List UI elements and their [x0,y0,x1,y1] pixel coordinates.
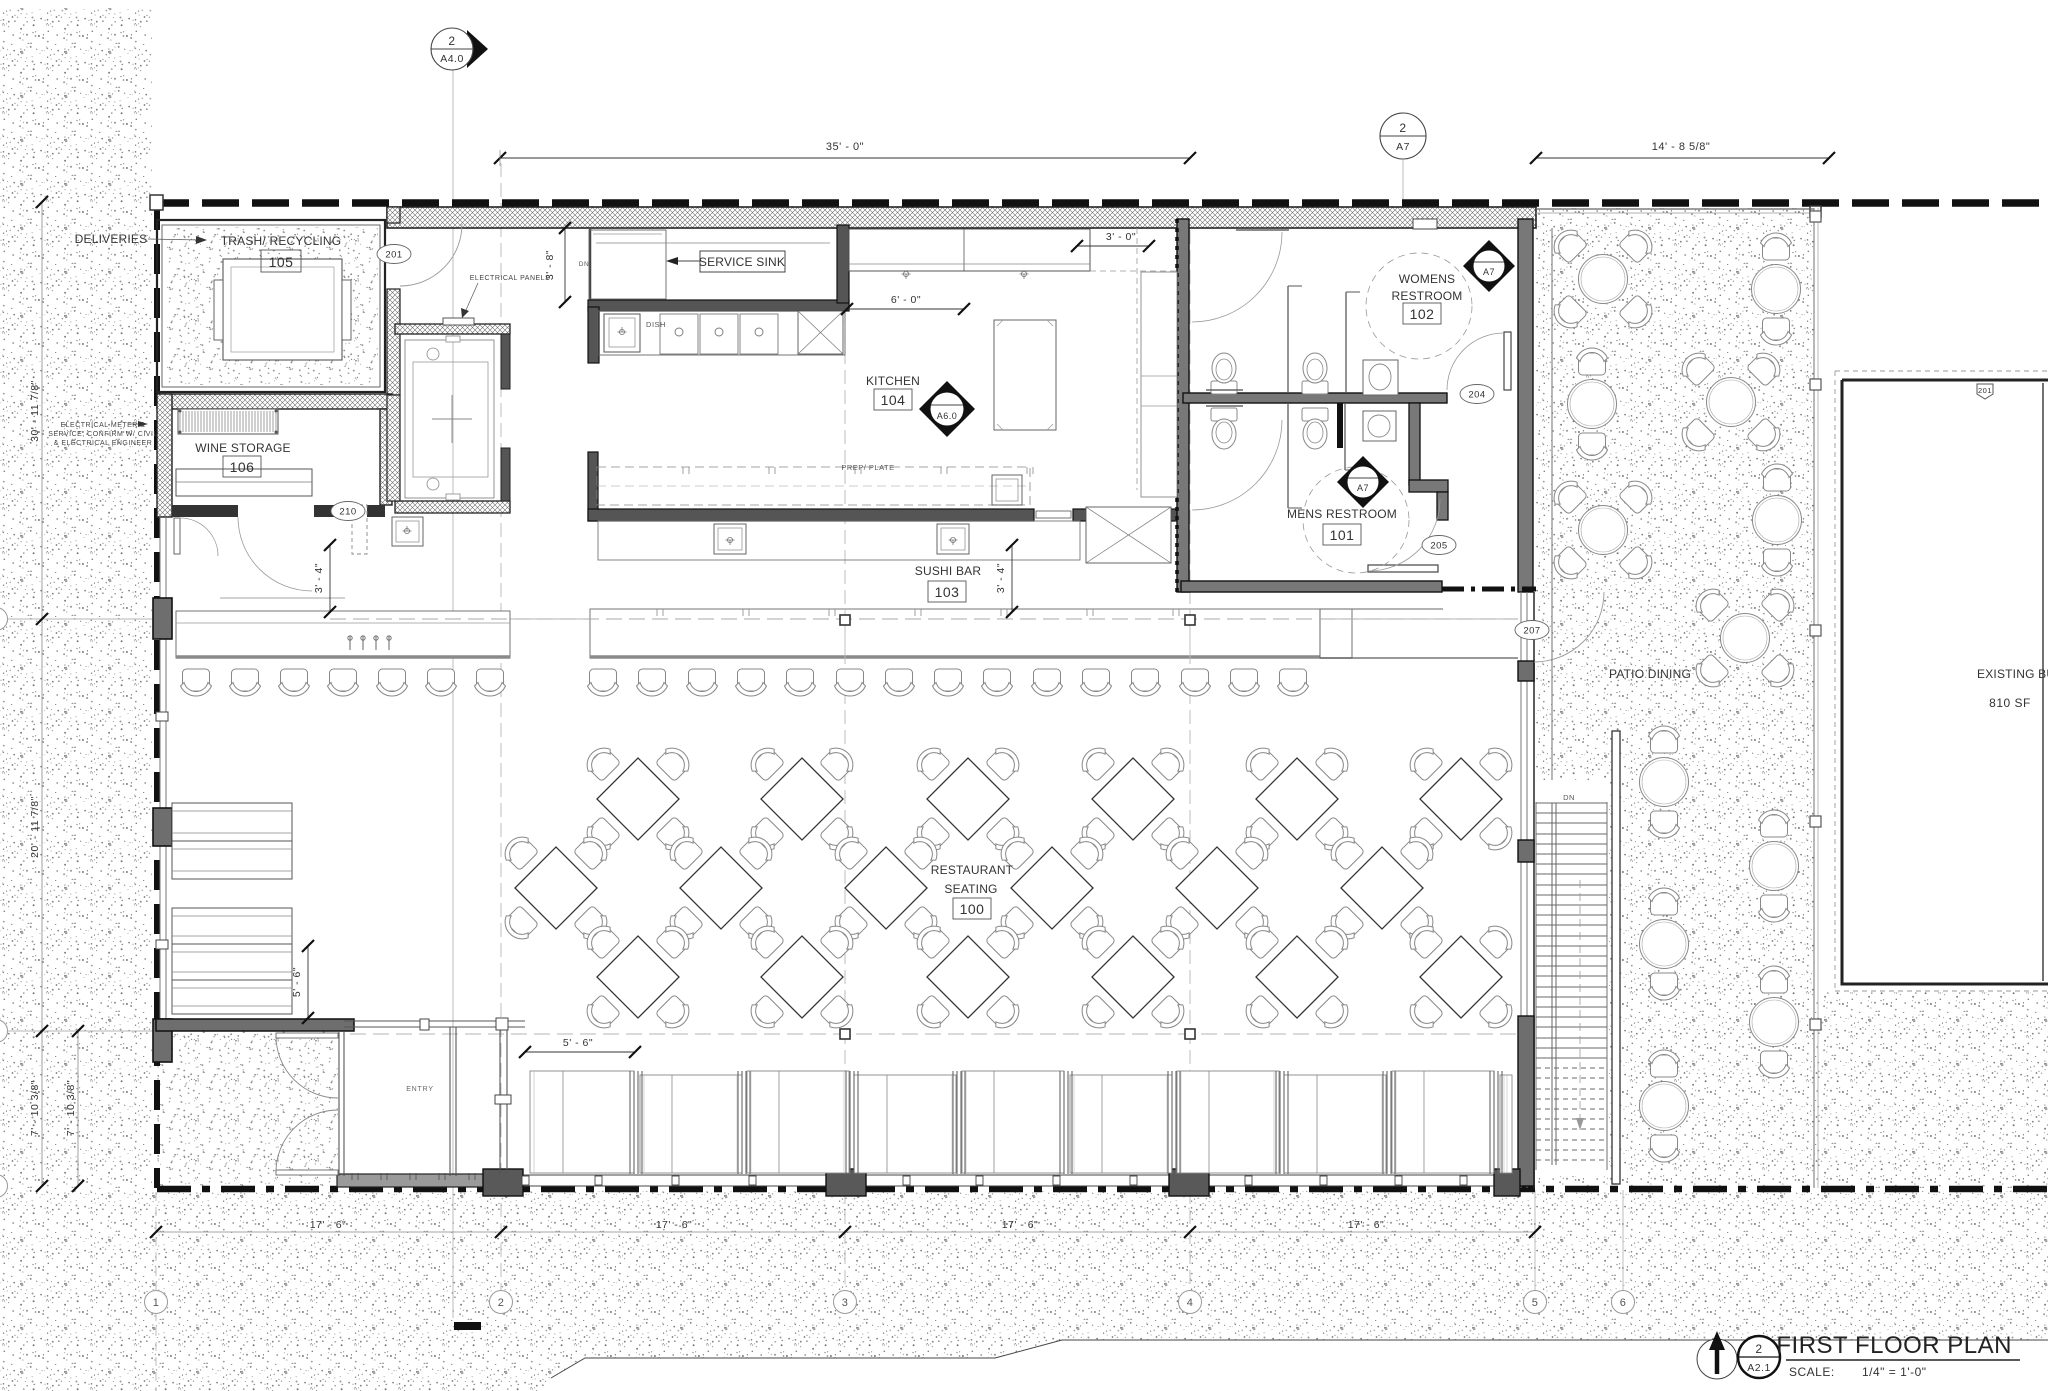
svg-text:101: 101 [1330,527,1355,543]
svg-text:3' - 0": 3' - 0" [1106,231,1136,243]
svg-text:& ELECTRICAL ENGINEER: & ELECTRICAL ENGINEER [54,440,153,447]
svg-text:2: 2 [1399,121,1406,135]
svg-text:ELECTRICAL METER &: ELECTRICAL METER & [61,422,146,429]
svg-text:SEATING: SEATING [944,882,997,896]
svg-text:RESTAURANT: RESTAURANT [931,863,1014,877]
svg-text:1/4" = 1'-0": 1/4" = 1'-0" [1862,1365,1927,1379]
svg-text:102: 102 [1410,306,1435,322]
svg-text:20' - 11 7/8": 20' - 11 7/8" [29,796,41,858]
svg-text:201: 201 [385,250,402,261]
svg-text:17' - 6": 17' - 6" [1348,1219,1385,1231]
svg-text:A7: A7 [1357,483,1369,493]
svg-text:3' - 8": 3' - 8" [544,250,556,280]
svg-text:3: 3 [842,1297,849,1309]
svg-text:17' - 6": 17' - 6" [1002,1219,1039,1231]
svg-text:7' - 10 3/8": 7' - 10 3/8" [65,1080,77,1136]
svg-text:106: 106 [230,459,255,475]
svg-text:TRASH/ RECYCLING: TRASH/ RECYCLING [221,234,342,248]
svg-text:210: 210 [339,507,356,518]
svg-text:3' - 4": 3' - 4" [313,563,325,593]
svg-text:EXISTING BUIL: EXISTING BUIL [1977,667,2048,681]
svg-text:2: 2 [1755,1342,1762,1356]
svg-text:103: 103 [935,584,960,600]
svg-text:30' - 11 7/8": 30' - 11 7/8" [29,380,41,442]
svg-text:RESTROOM: RESTROOM [1392,289,1463,303]
svg-text:A7: A7 [1483,267,1495,277]
svg-text:5' - 6": 5' - 6" [291,967,303,997]
svg-text:6: 6 [1620,1297,1627,1309]
svg-text:A4.0: A4.0 [440,53,464,65]
svg-text:FIRST FLOOR PLAN: FIRST FLOOR PLAN [1776,1332,2012,1359]
svg-text:ELECTRICAL PANELS: ELECTRICAL PANELS [470,275,550,282]
svg-text:MENS RESTROOM: MENS RESTROOM [1287,507,1397,521]
svg-text:PREP/ PLATE: PREP/ PLATE [841,463,894,472]
svg-text:SCALE:: SCALE: [1789,1365,1835,1379]
svg-text:SERVICE SINK: SERVICE SINK [699,255,785,269]
svg-text:SUSHI BAR: SUSHI BAR [915,564,982,578]
svg-text:1: 1 [153,1297,160,1309]
svg-text:5' - 6": 5' - 6" [563,1037,593,1049]
svg-text:17' - 6": 17' - 6" [310,1219,347,1231]
svg-text:5: 5 [1532,1297,1539,1309]
svg-text:DELIVERIES: DELIVERIES [75,232,148,246]
svg-text:205: 205 [1430,541,1447,552]
svg-text:17' - 6": 17' - 6" [656,1219,693,1231]
svg-text:105: 105 [269,254,294,270]
svg-text:2: 2 [498,1297,505,1309]
svg-text:PATIO DINING: PATIO DINING [1609,667,1691,681]
svg-text:WINE STORAGE: WINE STORAGE [195,441,291,455]
svg-text:207: 207 [1523,626,1540,637]
svg-text:KITCHEN: KITCHEN [866,374,920,388]
svg-text:4: 4 [1187,1297,1194,1309]
svg-text:201: 201 [1978,386,1992,395]
svg-text:ENTRY: ENTRY [406,1086,434,1093]
svg-text:7' - 10 3/8": 7' - 10 3/8" [29,1080,41,1136]
svg-text:SERVICE, CONFIRM W/ CIVIL: SERVICE, CONFIRM W/ CIVIL [48,431,158,438]
svg-text:14' - 8 5/8": 14' - 8 5/8" [1652,141,1710,153]
svg-text:810 SF: 810 SF [1989,696,2031,710]
svg-text:6' - 0": 6' - 0" [891,294,921,306]
svg-text:DN: DN [1563,793,1575,802]
svg-text:A2.1: A2.1 [1747,1362,1771,1374]
svg-text:WOMENS: WOMENS [1399,272,1456,286]
svg-text:104: 104 [881,392,906,408]
svg-text:204: 204 [1468,390,1485,401]
svg-text:A6.0: A6.0 [937,411,958,421]
svg-text:A7: A7 [1396,141,1410,153]
svg-text:35' - 0": 35' - 0" [826,141,864,153]
svg-text:2: 2 [448,34,455,48]
svg-text:DN: DN [579,261,589,268]
svg-text:100: 100 [960,901,985,917]
svg-text:3' - 4": 3' - 4" [995,563,1007,593]
svg-text:DISH: DISH [646,320,666,329]
